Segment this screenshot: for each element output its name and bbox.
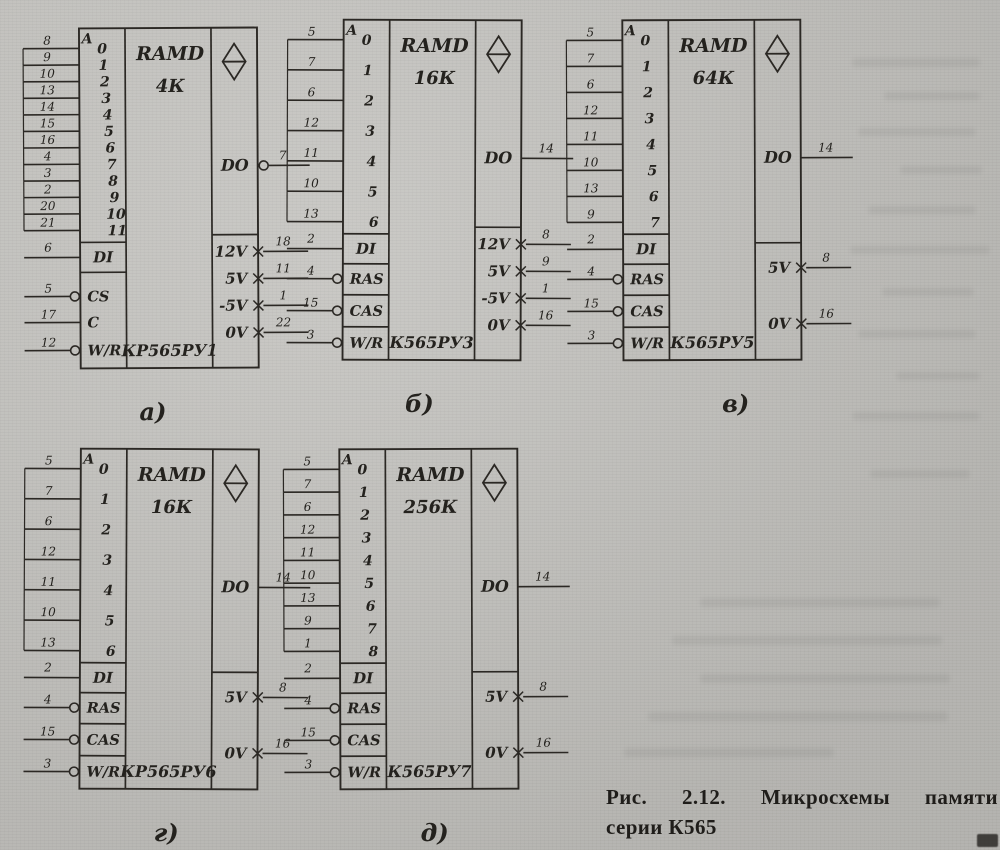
- chip-symbol-svg: A05172631241151061379DI2RAS4CAS15W/R3DO1…: [544, 7, 865, 428]
- pin-label-di: DI: [92, 248, 114, 266]
- control-pin-label: C: [87, 314, 99, 331]
- subfigure-label: д): [421, 818, 449, 847]
- power-pin-label: 5V: [225, 270, 249, 288]
- address-prefix-label: A: [344, 23, 357, 39]
- pin-number: 6: [304, 500, 312, 514]
- three-state-output-icon: [487, 36, 510, 72]
- pin-number: 12: [41, 544, 56, 558]
- right-column-divider: [754, 20, 755, 360]
- scanned-book-page: A081921031341451561674839210201121DI6CS5…: [0, 0, 1000, 850]
- active-low-bubble: [333, 306, 342, 315]
- pin-number: 13: [40, 83, 56, 97]
- pin-number: 11: [304, 146, 319, 160]
- pin-number: 10: [40, 67, 56, 81]
- address-bit-label: 6: [105, 141, 115, 157]
- left-column-divider: [385, 449, 386, 789]
- bleedthrough-mark: [648, 712, 948, 721]
- left-column-divider: [125, 449, 126, 789]
- three-state-output-icon: [223, 44, 246, 80]
- address-bit-label: 4: [104, 583, 114, 599]
- active-low-bubble: [71, 346, 80, 355]
- page-number-smudge: [977, 834, 998, 847]
- pin-number: 8: [822, 251, 830, 265]
- address-bit-label: 2: [99, 74, 110, 90]
- pin-number: 16: [819, 307, 835, 321]
- pin-number: 13: [40, 635, 56, 649]
- address-bit-label: 5: [364, 576, 374, 592]
- pin-number: 2: [586, 232, 595, 246]
- pin-number: 15: [40, 116, 55, 130]
- address-bit-label: 6: [366, 599, 376, 615]
- chip-type-label: RAMD: [135, 43, 205, 65]
- address-bit-label: 7: [107, 157, 117, 173]
- active-low-bubble: [330, 736, 339, 745]
- active-low-bubble: [333, 274, 342, 283]
- power-pin-label: 5V: [225, 688, 249, 706]
- address-bit-label: 8: [369, 644, 379, 660]
- pin-label-do: DO: [220, 156, 249, 175]
- chip-symbol-svg: A0517263124115106137981DI2RAS4CAS15W/R3D…: [261, 436, 582, 850]
- address-bit-label: 5: [105, 613, 115, 629]
- active-low-bubble: [330, 704, 339, 713]
- chip-part-number: КР565РУ6: [119, 762, 216, 781]
- address-bit-label: 1: [363, 63, 373, 79]
- address-bit-label: 7: [650, 215, 660, 231]
- power-pin-label: 5V: [488, 262, 511, 280]
- bleedthrough-mark: [868, 206, 976, 214]
- pin-number: 10: [40, 605, 56, 619]
- active-low-bubble: [330, 768, 339, 777]
- control-pin-label: CAS: [350, 303, 383, 320]
- pin-number: 21: [39, 216, 55, 230]
- power-pin-label: 5V: [485, 688, 508, 706]
- three-state-output-icon: [224, 465, 247, 501]
- active-low-bubble: [613, 275, 622, 284]
- address-bit-label: 10: [106, 207, 126, 223]
- power-pin-label: 5V: [768, 259, 791, 277]
- power-pin-label: 0V: [768, 315, 791, 333]
- pin-number: 2: [303, 661, 312, 675]
- control-pin-label: CAS: [347, 732, 380, 749]
- power-pin-label: 12V: [477, 235, 511, 253]
- left-column-divider: [668, 20, 669, 360]
- pin-number: 9: [43, 50, 51, 64]
- pin-number: 10: [300, 568, 316, 582]
- pin-label-do: DO: [763, 148, 792, 167]
- bleedthrough-mark: [850, 246, 990, 254]
- bleedthrough-mark: [624, 748, 834, 757]
- address-bit-label: 2: [100, 522, 111, 538]
- pin-number: 12: [304, 116, 319, 130]
- pin-number: 2: [43, 182, 52, 196]
- active-low-bubble: [613, 339, 622, 348]
- subfigure-label: б): [405, 389, 434, 418]
- chip-diagram-k565ru3: A051726312411510613DI2RAS4CAS15W/R3DO141…: [264, 7, 585, 432]
- pin-number: 9: [587, 207, 595, 221]
- chip-capacity: 16К: [414, 68, 456, 89]
- address-prefix-label: A: [623, 23, 636, 39]
- power-pin-label: 0V: [488, 316, 511, 334]
- pin-number: 20: [39, 199, 56, 213]
- chip-type-label: RAMD: [678, 35, 748, 57]
- address-bit-label: 1: [99, 58, 109, 74]
- pin-number: 6: [44, 241, 52, 255]
- pin-number: 4: [303, 693, 312, 707]
- active-low-bubble: [613, 307, 622, 316]
- bleedthrough-mark: [900, 166, 982, 174]
- pin-label-di: DI: [352, 669, 374, 687]
- address-bit-label: 0: [640, 33, 650, 49]
- bleedthrough-mark: [884, 92, 980, 100]
- bleedthrough-mark: [700, 674, 950, 683]
- pin-number: 15: [303, 296, 318, 310]
- address-bit-label: 0: [99, 462, 109, 478]
- address-bit-label: 1: [359, 485, 369, 501]
- address-bit-label: 2: [363, 93, 374, 109]
- pin-number: 14: [535, 570, 550, 584]
- control-pin-label: RAS: [349, 271, 384, 288]
- address-bit-label: 5: [368, 184, 378, 200]
- pin-label-do: DO: [220, 577, 249, 596]
- subfigure-label: в): [722, 389, 749, 418]
- control-pin-label: CAS: [87, 732, 120, 749]
- pin-label-di: DI: [635, 240, 657, 258]
- chip-capacity: 16К: [151, 497, 193, 518]
- left-column-divider: [125, 28, 127, 368]
- address-bit-label: 11: [108, 223, 128, 239]
- control-pin-label: CAS: [630, 303, 663, 320]
- control-pin-label: W/R: [350, 335, 384, 352]
- pin-number: 16: [40, 133, 56, 147]
- pin-number: 11: [300, 545, 315, 559]
- power-pin-label: 12V: [215, 243, 249, 261]
- power-pin-label: 0V: [225, 324, 249, 342]
- power-pin-label: -5V: [219, 297, 249, 315]
- control-pin-label: W/R: [347, 764, 381, 781]
- control-pin-label: RAS: [629, 271, 664, 288]
- pin-number: 13: [303, 207, 319, 221]
- control-pin-label: CS: [87, 288, 109, 305]
- pin-number: 3: [307, 328, 315, 342]
- address-prefix-label: A: [80, 31, 93, 47]
- active-low-bubble: [333, 338, 342, 347]
- pin-number: 4: [586, 264, 595, 278]
- pin-number: 7: [308, 55, 316, 69]
- bleedthrough-mark: [852, 412, 980, 420]
- pin-number: 11: [583, 129, 598, 143]
- control-pin-label: RAS: [86, 700, 121, 717]
- pin-number: 10: [583, 155, 599, 169]
- pin-number: 3: [44, 166, 52, 180]
- bleedthrough-mark: [882, 288, 974, 296]
- subfigure-label: а): [139, 397, 166, 426]
- active-low-bubble: [70, 292, 79, 301]
- pin-number: 7: [304, 477, 312, 491]
- right-column-divider: [471, 449, 472, 789]
- pin-number: 3: [305, 757, 313, 771]
- address-bit-label: 4: [103, 107, 113, 123]
- chip-diagram-k565ru5: A05172631241151061379DI2RAS4CAS15W/R3DO1…: [544, 7, 865, 432]
- chip-diagram-k565ru7: A0517263124115106137981DI2RAS4CAS15W/R3D…: [261, 436, 582, 850]
- chip-type-label: RAMD: [400, 35, 470, 57]
- pin-label-di: DI: [355, 240, 377, 258]
- pin-number: 6: [308, 85, 316, 99]
- power-pin-label: 0V: [224, 744, 248, 762]
- address-bit-label: 6: [369, 215, 379, 231]
- subfigure-label: г): [154, 818, 179, 847]
- bleedthrough-mark: [896, 372, 980, 380]
- bleedthrough-mark: [672, 636, 942, 645]
- active-low-bubble: [70, 735, 79, 744]
- control-pin-label: W/R: [86, 764, 120, 781]
- bleedthrough-mark: [852, 58, 980, 67]
- pin-number: 5: [586, 25, 594, 39]
- pin-number: 6: [587, 77, 595, 91]
- pin-number: 4: [306, 264, 315, 278]
- address-bit-label: 3: [645, 111, 655, 127]
- address-prefix-label: A: [340, 452, 353, 468]
- pin-number: 13: [583, 181, 599, 195]
- pin-number: 4: [43, 149, 52, 163]
- pin-number: 12: [300, 523, 315, 537]
- pin-label-do: DO: [480, 577, 509, 596]
- address-bit-label: 9: [110, 190, 120, 206]
- chip-capacity: 64К: [693, 68, 735, 89]
- address-bit-label: 5: [647, 163, 657, 179]
- pin-label-di: DI: [92, 669, 114, 687]
- address-bit-label: 0: [357, 462, 367, 478]
- pin-number: 3: [44, 756, 52, 770]
- chip-part-number: К565РУ5: [669, 333, 754, 352]
- figure-caption-line1: Рис. 2.12. Микросхемы памяти: [606, 782, 998, 812]
- pin-number: 9: [304, 614, 312, 628]
- pin-number: 15: [301, 725, 316, 739]
- active-low-bubble: [70, 703, 79, 712]
- pin-number: 7: [45, 484, 53, 498]
- right-column-divider: [475, 20, 476, 360]
- address-bit-label: 1: [642, 59, 652, 75]
- pin-number: 5: [45, 453, 53, 467]
- pin-number: 4: [43, 692, 52, 706]
- chip-type-label: RAMD: [137, 464, 207, 486]
- chip-part-number: КР565РУ1: [121, 341, 218, 361]
- address-bit-label: 5: [104, 124, 114, 140]
- address-bit-label: 2: [642, 85, 653, 101]
- chip-symbol-svg: A051726312411510613DI2RAS4CAS15W/R3DO141…: [264, 7, 585, 428]
- chip-capacity: 256К: [402, 497, 458, 518]
- address-bit-label: 0: [362, 33, 372, 49]
- three-state-output-icon: [483, 465, 506, 501]
- control-pin-label: W/R: [630, 335, 664, 352]
- pin-number: 16: [536, 736, 552, 750]
- pin-number: 13: [300, 591, 316, 605]
- pin-number: 12: [41, 336, 56, 350]
- bleedthrough-mark: [700, 598, 940, 607]
- figure-caption-line2: серии К565: [606, 812, 998, 842]
- pin-number: 15: [584, 296, 599, 310]
- pin-number: 15: [40, 724, 55, 738]
- pin-number: 17: [41, 308, 57, 322]
- address-bit-label: 3: [101, 91, 111, 107]
- pin-number: 7: [587, 51, 595, 65]
- pin-number: 5: [303, 454, 311, 468]
- pin-number: 12: [583, 103, 598, 117]
- address-bit-label: 3: [362, 530, 372, 546]
- pin-number: 2: [306, 232, 315, 246]
- control-pin-label: W/R: [88, 342, 122, 359]
- pin-number: 8: [539, 680, 547, 694]
- figure-caption: Рис. 2.12. Микросхемы памяти серии К565: [606, 782, 998, 843]
- address-bit-label: 6: [106, 644, 116, 660]
- right-column-divider: [211, 28, 213, 368]
- left-column-divider: [389, 20, 390, 360]
- pin-number: 14: [818, 141, 833, 155]
- pin-number: 1: [304, 636, 312, 650]
- bleedthrough-mark: [870, 470, 970, 478]
- address-bit-label: 8: [108, 174, 118, 190]
- pin-number: 8: [43, 34, 51, 48]
- pin-number: 6: [45, 514, 53, 528]
- pin-number: 2: [43, 660, 52, 674]
- chip-part-number: К565РУ7: [386, 762, 471, 781]
- pin-number: 5: [308, 25, 316, 39]
- right-column-divider: [211, 449, 212, 789]
- address-bit-label: 1: [100, 492, 110, 508]
- bleedthrough-mark: [858, 128, 976, 136]
- chip-type-label: RAMD: [395, 464, 465, 486]
- address-bit-label: 0: [97, 41, 107, 57]
- pin-number: 10: [303, 176, 319, 190]
- address-bit-label: 3: [365, 124, 375, 140]
- power-pin-label: -5V: [481, 289, 511, 307]
- address-bit-label: 3: [102, 553, 112, 569]
- chip-capacity: 4К: [156, 76, 186, 97]
- address-prefix-label: A: [81, 452, 94, 468]
- pin-number: 3: [588, 328, 596, 342]
- pin-number: 5: [44, 282, 52, 296]
- address-bit-label: 6: [649, 189, 659, 205]
- address-bit-label: 7: [367, 621, 377, 637]
- control-pin-label: RAS: [346, 700, 381, 717]
- pin-label-do: DO: [483, 148, 512, 167]
- active-low-bubble: [69, 767, 78, 776]
- address-bit-label: 4: [366, 154, 376, 170]
- chip-part-number: К565РУ3: [388, 333, 473, 352]
- pin-number: 11: [41, 575, 56, 589]
- address-bit-label: 4: [363, 553, 373, 569]
- bleedthrough-mark: [858, 330, 976, 338]
- address-bit-label: 2: [359, 508, 370, 524]
- three-state-output-icon: [766, 36, 789, 72]
- pin-number: 14: [40, 100, 55, 114]
- address-bit-label: 4: [646, 137, 656, 153]
- power-pin-label: 0V: [485, 744, 508, 762]
